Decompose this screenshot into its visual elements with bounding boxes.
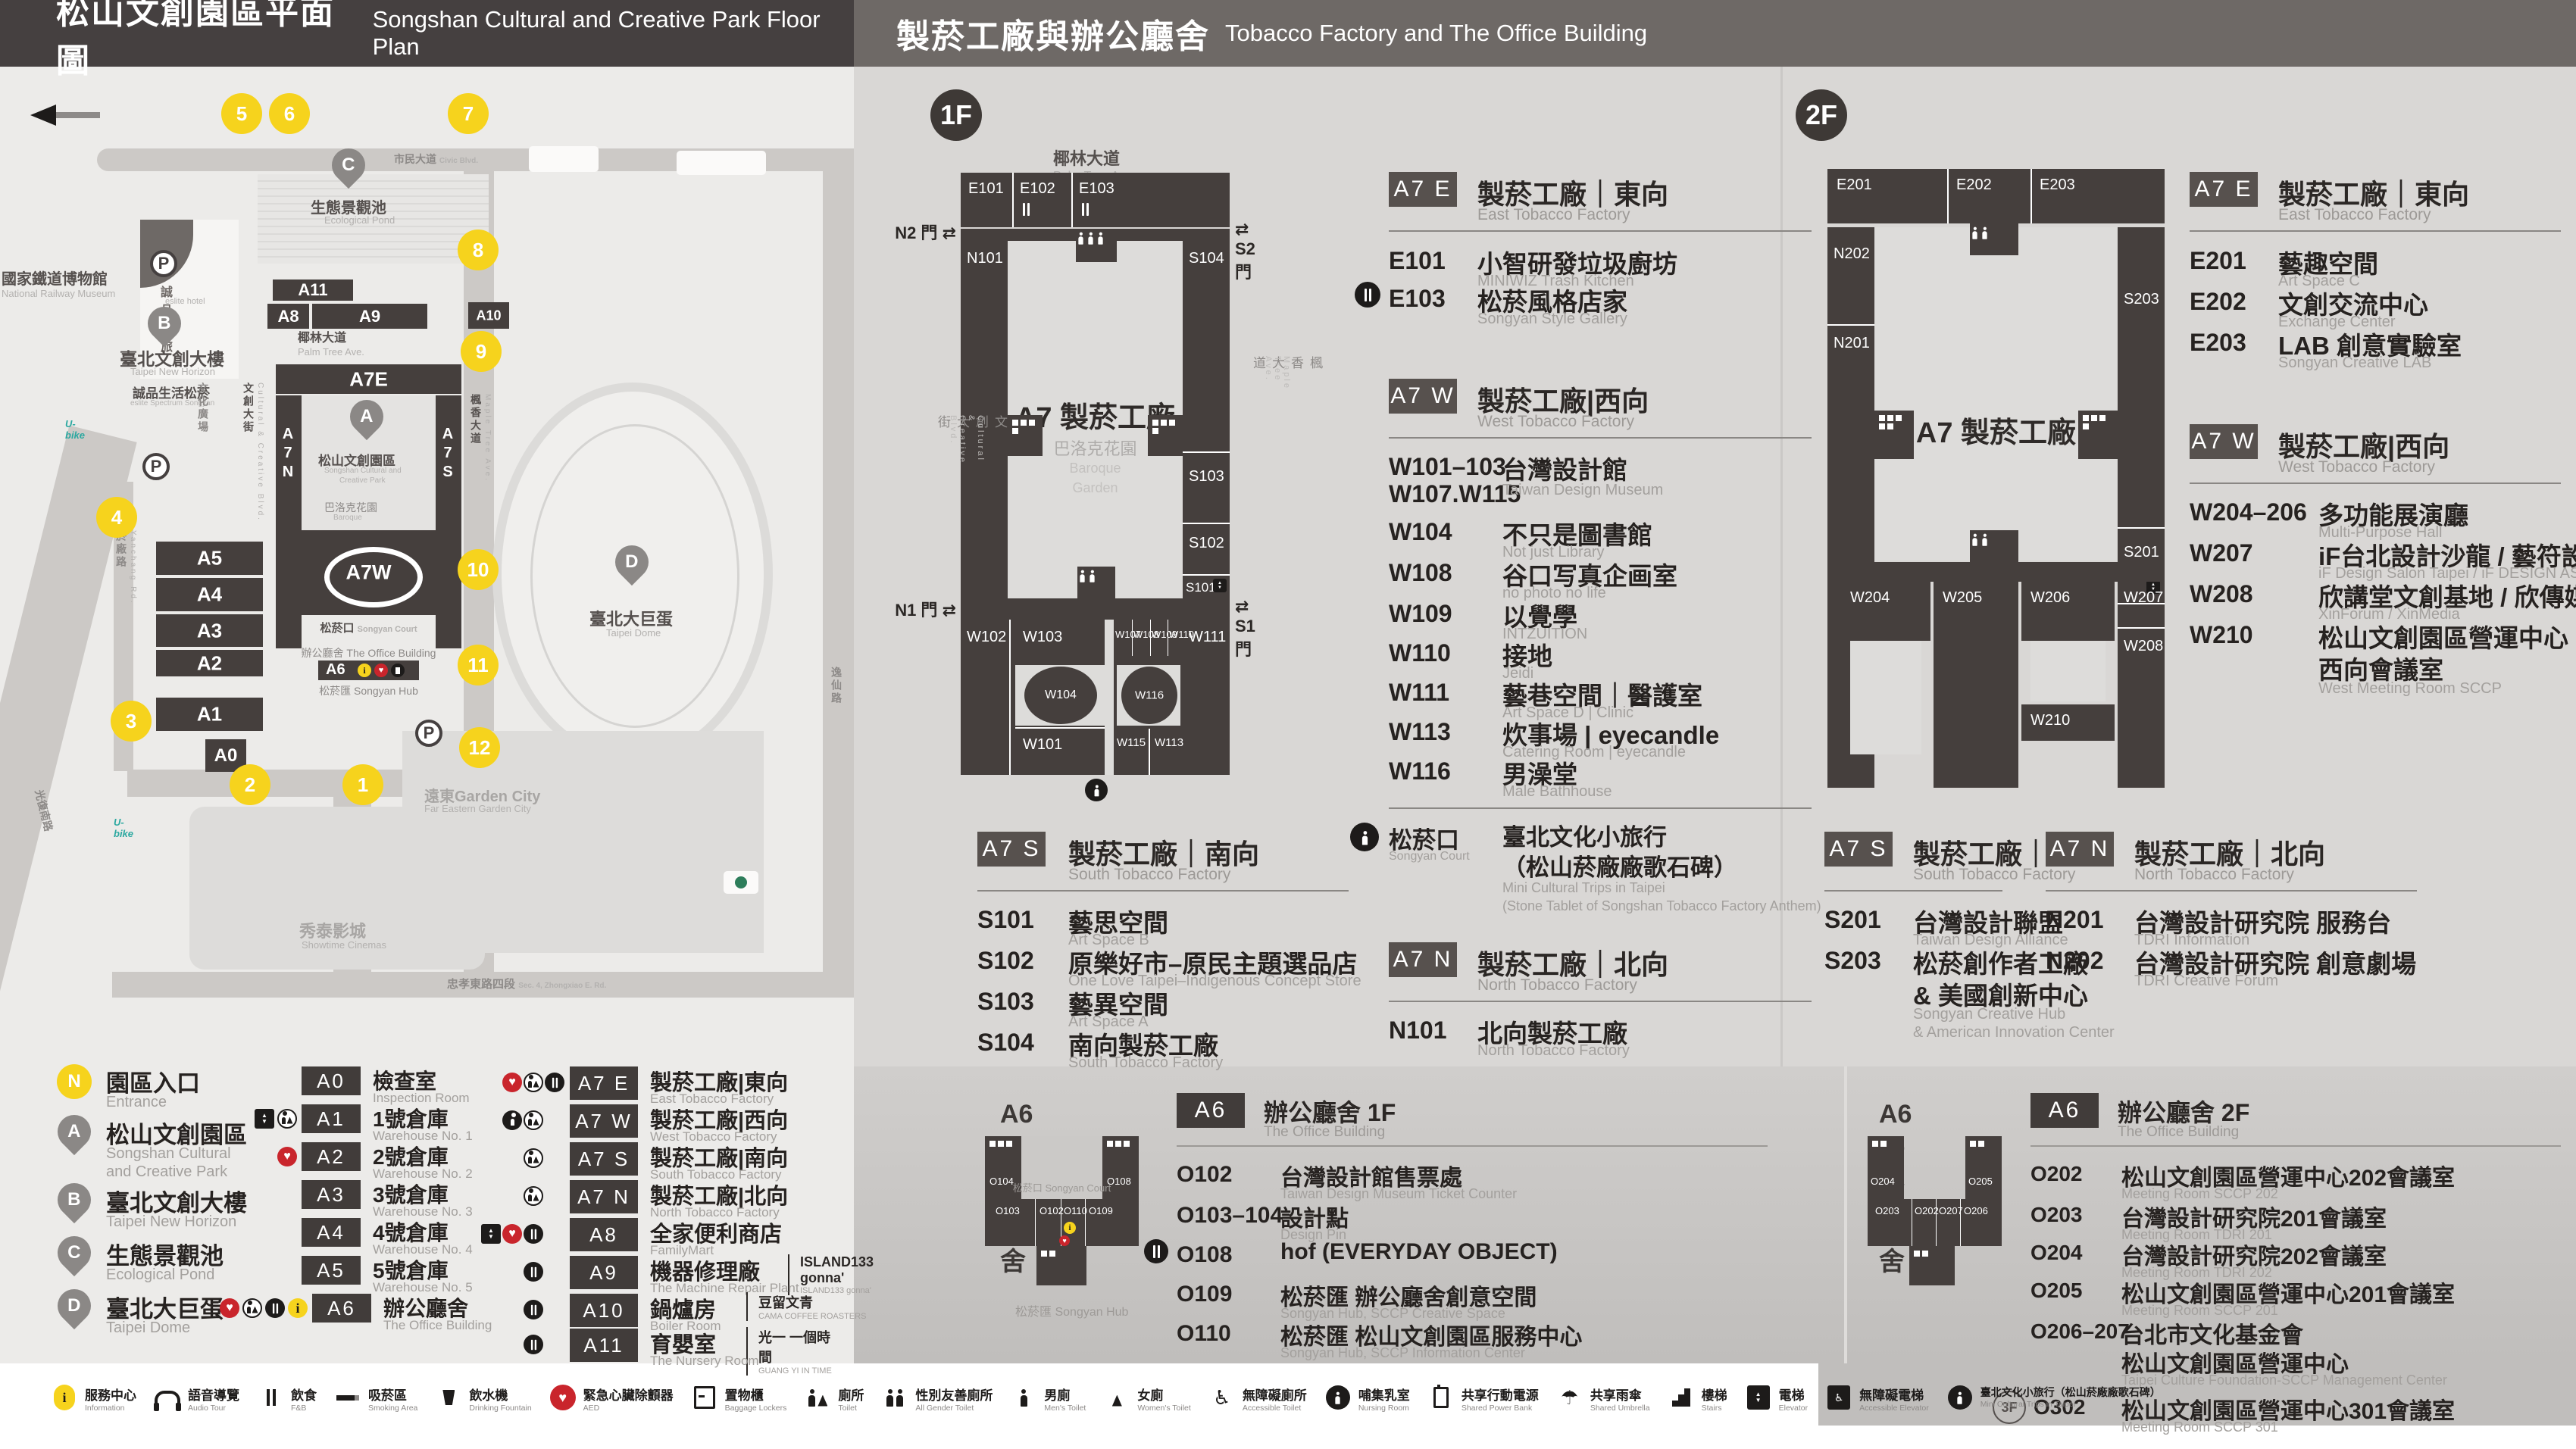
info-icon: i (54, 1385, 75, 1410)
dome-label-en: Taipei Dome (606, 627, 661, 639)
court-zh: 松菸口 (1013, 1182, 1043, 1194)
room-W205: W205 (1943, 589, 1982, 607)
legend-badge-a3: A3 (302, 1180, 361, 1209)
yixian-label: 逸仙路 (829, 667, 844, 705)
room-W206: W206 (2030, 589, 2070, 607)
yanchang-label-en: Yanchang Rd. (129, 530, 137, 605)
railway-museum-label: 國家鐵道博物館 (2, 267, 108, 289)
a6-2f-bottom-bar: O203 O202 O207 O206 (1868, 1199, 2002, 1246)
aed-heart: ♥ (508, 1076, 516, 1089)
map-a7e-bar: A7E (276, 364, 461, 394)
divider (1389, 1001, 1812, 1002)
map-a7s-label: A7S (439, 426, 456, 482)
map-a7s-col: A7S (436, 395, 461, 648)
f2-garden (1874, 227, 2118, 561)
gate-arrows-icon: ⇄ (1235, 220, 1249, 239)
label-zh: 置物櫃 (725, 1385, 787, 1404)
label-zh: 服務中心 (85, 1385, 136, 1404)
legend-park-en: Songshan Cultural (106, 1145, 231, 1163)
court-en: Songyan Court (1045, 1182, 1111, 1194)
room-W115: W115 (1117, 736, 1146, 749)
map-a8: A8 (267, 304, 309, 329)
parking-letter: P (424, 723, 435, 743)
f1-left-stair-block (1008, 415, 1043, 456)
entrance-9-number: 9 (476, 340, 486, 364)
room-E102: E102 (1020, 180, 1055, 198)
label-en: Toilet (838, 1404, 864, 1413)
entrance-12: 12 (459, 727, 500, 768)
a4: A4 (317, 1221, 345, 1244)
code-W109: W109 (1389, 600, 1452, 628)
parking-icon-3: P (415, 720, 442, 747)
room-N101: N101 (967, 250, 1003, 267)
legend-a6-en: The Office Building (383, 1318, 492, 1333)
north-arrow-icon (30, 105, 56, 126)
f1-west-badge: A7 W (1389, 379, 1457, 414)
court-zh: 松菸口 (320, 622, 354, 635)
parking-letter: P (158, 254, 170, 273)
f1-north-title-en: North Tobacco Factory (1477, 976, 1637, 995)
a10-brand-sub: CAMA COFFEE ROASTERS (758, 1312, 866, 1321)
a10: A10 (583, 1299, 624, 1323)
sub-O206: Taipei Culture Foundation-SCCP Managemen… (2121, 1372, 2447, 1388)
label-zh: 緊急心臟除顫器 (583, 1385, 674, 1404)
f2-right-col: S203 S201 ▲▼ (2118, 227, 2165, 788)
entrance-3: 3 (111, 701, 152, 742)
legend-item-smoking: 吸菸區Smoking Area (335, 1385, 417, 1413)
legend-badge-a2: A2 (302, 1142, 361, 1171)
divider (977, 890, 1349, 892)
f2-left-stair-block (1874, 411, 1914, 459)
a3: A3 (317, 1183, 345, 1207)
a6-1f-badge-label: A6 (1195, 1098, 1227, 1123)
a6-2f-badge: A6 (2030, 1093, 2099, 1128)
legend-item-powerbank: 共享行動電源Shared Power Bank (1428, 1385, 1539, 1413)
entrance-7-number: 7 (463, 102, 474, 126)
f1-south-title-en: South Tobacco Factory (1068, 866, 1230, 884)
code-S201: S201 (1824, 906, 1881, 934)
map-a7n-label: A7N (279, 426, 296, 482)
elevator-icon: ▲▼ (255, 1109, 274, 1129)
accessible-elevator-icon: ♿ (1827, 1385, 1850, 1410)
legend-n: N (67, 1071, 80, 1092)
map-a11: A11 (273, 279, 353, 301)
room-W101: W101 (1023, 736, 1062, 754)
road-yixian (823, 156, 854, 997)
info-icon: i (358, 664, 371, 677)
youbike-icon-2: U-bike (114, 817, 133, 839)
a11: A11 (583, 1334, 624, 1357)
a7s: A7 S (578, 1148, 630, 1171)
code-N101: N101 (1389, 1016, 1447, 1045)
map-a6-label: A6 (326, 661, 345, 679)
accessible-icon: ♿ (1213, 1388, 1230, 1407)
label-en: Nursing Room (1358, 1404, 1410, 1413)
room-O203: O203 (1875, 1205, 1899, 1216)
code-E202: E202 (2190, 288, 2246, 316)
aed-icon: ♥ (220, 1298, 239, 1318)
f2-w206-court (2030, 641, 2106, 701)
legend-item-lockers: 置物櫃Baggage Lockers (692, 1385, 787, 1413)
sub-O110: Songyan Hub, SCCP Information Center (1280, 1345, 1525, 1361)
facility-icon-bar: i服務中心Information 語音導覽Audio Tour 飲食F&B 吸菸… (52, 1385, 1552, 1433)
code-N202: N202 (2046, 947, 2104, 975)
map-a11-label: A11 (298, 280, 327, 300)
palm-en: Palm Tree Ave. (298, 346, 364, 358)
legend-item-aed: ♥緊急心臟除顫器AED (550, 1385, 674, 1413)
map-a8-label: A8 (277, 307, 299, 326)
restaurant-icon (1144, 1239, 1168, 1263)
sub-E203: Songyan Creative LAB (2278, 354, 2431, 372)
elevator-icon: ▲▼ (481, 1224, 501, 1244)
right-title-zh: 製菸工廠與辦公廳舍 (896, 9, 1210, 58)
code-S102: S102 (977, 947, 1034, 975)
room-O110: O110 (1064, 1205, 1087, 1216)
aed-icon: ♥ (277, 1147, 297, 1166)
f1-corridor (961, 598, 1230, 620)
divider (1389, 230, 1812, 232)
legend-item-cultural-trip: 臺北文化小旅行（松山菸廠廠歌石碑）Mini Cultural Trips in … (1947, 1385, 2161, 1410)
parking-letter: P (151, 457, 162, 476)
legend-badge-a7n: A7 N (570, 1180, 638, 1213)
nursing-icon (502, 1110, 522, 1130)
room-E202: E202 (1956, 176, 1992, 194)
divider (2190, 482, 2561, 484)
court-sub-2: (Stone Tablet of Songshan Tobacco Factor… (1502, 898, 1821, 914)
room-O109: O109 (1089, 1205, 1113, 1216)
toilet-icon (277, 1109, 297, 1129)
code-E203: E203 (2190, 329, 2246, 357)
entrance-11-number: 11 (467, 654, 489, 677)
room-S101: S101 (1186, 580, 1216, 595)
gate-s1-label: S1 門 (1235, 617, 1255, 659)
legend-a9-extra: ISLAND133 gonna' ISLAND133 gonna' (788, 1254, 874, 1295)
legend-item-elevator: ▲▼電梯Elevator (1746, 1385, 1809, 1413)
map-a4-label: A4 (197, 583, 222, 607)
f2-top-bar: E201 E202 E203 (1827, 169, 2165, 223)
toilet-icon (524, 1110, 543, 1130)
f2-w210: W210 (2021, 704, 2115, 741)
code-O203: O203 (2030, 1203, 2083, 1227)
code-W207: W207 (2190, 539, 2253, 567)
a6-2f-badge-label: A6 (2049, 1098, 2081, 1123)
a5: A5 (317, 1259, 345, 1282)
room-O104: O104 (989, 1176, 1014, 1187)
code-W113: W113 (1389, 718, 1451, 746)
room-W116: W116 (1135, 689, 1164, 702)
label-en: Women's Toilet (1137, 1404, 1190, 1413)
legend-d: D (67, 1295, 80, 1316)
map-a2-label: A2 (197, 651, 222, 675)
room-S203: S203 (2124, 291, 2159, 308)
legend-badge-a8: A8 (570, 1218, 638, 1251)
f2-east-badge-label: A7 E (2194, 176, 2252, 202)
f2-west-title-en: West Tobacco Factory (2278, 458, 2435, 476)
code-W110: W110 (1389, 639, 1451, 667)
legend-dome-en: Taipei Dome (106, 1319, 190, 1337)
gate-n1: N1 門 ⇄ (877, 597, 956, 621)
maple-label: 楓香大道 (468, 394, 483, 445)
legend-badge-a7w: A7 W (570, 1104, 638, 1138)
entrance-8: 8 (458, 230, 499, 270)
entrance-6: 6 (269, 93, 310, 134)
map-a5-label: A5 (197, 547, 222, 570)
room-O103: O103 (996, 1205, 1020, 1216)
gate-n1-label: N1 門 (895, 601, 937, 620)
a7w: A7 W (575, 1110, 633, 1133)
civic-zh: 市民大道 (394, 153, 436, 165)
office-band-divider (1844, 1066, 1847, 1363)
elev-down: ▼ (488, 1234, 494, 1240)
aed-heart: ♥ (226, 1301, 233, 1315)
civic-label: 市民大道 Civic Blvd. (394, 151, 478, 167)
code-S101: S101 (977, 906, 1034, 934)
songyan-court-walk-icon (1085, 779, 1108, 801)
label-zh: 無障礙廁所 (1243, 1385, 1307, 1404)
map-a1-label: A1 (197, 703, 222, 726)
right-panel-column-divider (1780, 67, 1783, 1066)
legend-entrance-icon: N (57, 1064, 92, 1099)
f1-baroque-en2: Garden (1008, 480, 1183, 496)
toilet-icon (242, 1298, 262, 1318)
a6-2f-stem (1909, 1246, 1955, 1285)
right-title-en: Tobacco Factory and The Office Building (1225, 20, 1647, 47)
restaurant-icon (265, 1298, 285, 1318)
baroque-label-en: Baroque (333, 514, 362, 522)
elev-down: ▼ (1755, 1397, 1762, 1404)
entrance-9: 9 (461, 331, 502, 372)
f1-west-badge-label: A7 W (1390, 383, 1455, 409)
zhongxiao-label: 忠孝東路四段 Sec. 4, Zhongxiao E. Rd. (447, 976, 606, 992)
label-en: Elevator (1779, 1404, 1809, 1413)
palm-ave-label: 椰林大道 Palm Tree Ave. (298, 327, 364, 359)
map-a0-label: A0 (214, 745, 238, 767)
f1-west-title-en: West Tobacco Factory (1477, 413, 1634, 431)
room-W207: W207 (2124, 589, 2163, 607)
legend-b: B (67, 1189, 80, 1210)
room-O205: O205 (1968, 1176, 1993, 1187)
code-W204: W204–206 (2190, 498, 2307, 526)
code-O206: O206–207 (2030, 1319, 2130, 1344)
zhongxiao-zh: 忠孝東路四段 (447, 978, 515, 991)
ccblvd-label-en: Cultural & Creative Blvd. (256, 383, 264, 522)
aed-heart: ♥ (558, 1390, 567, 1406)
code-O103: O103–104 (1177, 1203, 1283, 1229)
room-N202: N202 (1834, 245, 1870, 263)
a6-1f-hub-label: 松菸匯 Songyan Hub (1015, 1301, 1128, 1319)
north-arrow-tail (56, 112, 100, 118)
entrance-1: 1 (342, 764, 383, 805)
label-zh: 共享雨傘 (1590, 1385, 1650, 1404)
entrance-3-number: 3 (126, 710, 136, 733)
legend-badge-a7e: A7 E (570, 1066, 638, 1100)
code-O204: O204 (2030, 1241, 2083, 1265)
entrance-11: 11 (458, 645, 499, 685)
f1-top-bar: E101 E102 E103 (961, 173, 1230, 227)
f2-w206: W206 (2021, 582, 2115, 641)
gate-s1: ⇄ S1 門 (1235, 597, 1255, 660)
pin-b-letter: B (158, 313, 170, 334)
gate-s2-label: S2 門 (1235, 239, 1255, 282)
divider (1389, 807, 1812, 809)
label-en: All Gender Toilet (915, 1404, 993, 1413)
entrance-10: 10 (458, 549, 499, 590)
a11-brand-sub: GUANG YI IN TIME (758, 1366, 832, 1376)
label-zh: 臺北文化小旅行（松山菸廠廠歌石碑） (1980, 1385, 2161, 1400)
legend-item-water: 飲水機Drinking Fountain (436, 1385, 531, 1413)
map-a7w-block: A7W (302, 530, 436, 615)
label-en: Information (85, 1404, 136, 1413)
legend-item-accessible-elevator: ♿無障礙電梯Accessible Elevator (1826, 1385, 1929, 1413)
sub-N101: North Tobacco Factory (1477, 1042, 1630, 1060)
map-a6-bar: A6 i ♥ (318, 660, 419, 680)
f2-w205: W205 (1934, 582, 2018, 788)
legend-badge-a9: A9 (570, 1256, 638, 1289)
a2: A2 (317, 1145, 345, 1169)
eslite-hotel-label-en: eslite hotel (165, 297, 205, 306)
palm-zh: 椰林大道 (1053, 149, 1120, 168)
sub-S203: Songyan Creative Hub (1913, 1006, 2065, 1023)
a10-brand: 豆留文青 (758, 1292, 866, 1312)
a7n: A7 N (577, 1185, 630, 1209)
parking-icon-2: P (142, 453, 170, 480)
legend-a: A (67, 1121, 80, 1142)
railway-museum-label-en: National Railway Museum (2, 288, 115, 299)
code-W104: W104 (1389, 518, 1452, 546)
a6-1f-court: 松菸口 Songyan Court (1021, 1136, 1102, 1199)
entrance-5-number: 5 (236, 102, 247, 126)
info-letter: i (1068, 1223, 1071, 1232)
elev-down: ▼ (1218, 586, 1222, 590)
ccblvd-label: 文創大街 (241, 383, 256, 434)
gate-n2-label: N2 門 (895, 223, 937, 242)
aed-icon: ♥ (1059, 1235, 1070, 1246)
pin-d-letter: D (625, 551, 638, 573)
legend-a10-extra: 豆留文青 CAMA COFFEE ROASTERS (746, 1292, 866, 1321)
room-W104: W104 (1045, 689, 1077, 702)
f1-bottom-gate-block (1077, 567, 1115, 598)
sub-O302: Meeting Room SCCP 301 (2121, 1419, 2278, 1435)
gate-n2: N2 門 ⇄ (877, 220, 956, 244)
entrance-5: 5 (221, 93, 262, 134)
bus-stop-box-1 (529, 146, 599, 172)
pond-label-en: Ecological Pond (324, 214, 395, 226)
info-letter: i (295, 1301, 299, 1316)
map-a1: A1 (156, 698, 263, 731)
room-W208: W208 (2124, 638, 2163, 655)
maple-label-en: Maple Tree Ave. (483, 394, 492, 482)
hub-map-label: 松菸匯 Songyan Hub (302, 683, 436, 698)
f2-west-badge-label: A7 W (2191, 429, 2256, 454)
code-O202: O202 (2030, 1162, 2083, 1186)
map-a7n-col: A7N (276, 395, 302, 648)
floor1-badge: 1F (930, 89, 982, 141)
label-zh: 女廁 (1137, 1385, 1190, 1404)
room-W210: W210 (2030, 712, 2070, 729)
smoking-icon (336, 1395, 359, 1401)
a6-1f-stem (1036, 1246, 1086, 1285)
label-zh: 飲水機 (469, 1385, 531, 1404)
f2-north-badge: A7 N (2046, 832, 2114, 867)
hub-zh: 松菸匯 (319, 685, 351, 697)
hub-en: Songyan Hub (1055, 1306, 1128, 1319)
gardencity-label-en: Far Eastern Garden City (424, 803, 531, 814)
legend-item-stairs: 樓梯Stairs (1668, 1385, 1727, 1413)
officebldg-map-label: 辦公廳舍 The Office Building (288, 645, 449, 660)
code-W108: W108 (1389, 559, 1452, 587)
a1: A1 (317, 1107, 345, 1131)
map-a10-label: A10 (476, 308, 501, 323)
label-zh: 電梯 (1779, 1385, 1809, 1404)
pin-a-letter: A (360, 406, 373, 427)
label-en: Smoking Area (368, 1404, 417, 1413)
code-O205: O205 (2030, 1279, 2083, 1303)
parking-icon-1: P (150, 250, 177, 277)
f1-north-badge: A7 N (1389, 942, 1457, 977)
legend-item-mens: 男廁Men's Toilet (1011, 1385, 1086, 1413)
legend-badge-a10: A10 (570, 1294, 638, 1327)
gate-arrows-icon: ⇄ (943, 223, 956, 242)
elevator-icon: ▲▼ (1213, 579, 1227, 592)
elev-down: ▼ (261, 1119, 267, 1125)
f2-right-stair-block (2078, 411, 2118, 459)
floor-plan-poster: 松山文創園區平面圖 Songshan Cultural and Creative… (0, 0, 2576, 1449)
cultural-trip-icon (1948, 1385, 1972, 1410)
map-a3-label: A3 (197, 619, 222, 642)
info-letter: i (62, 1390, 66, 1406)
room-S102: S102 (1189, 535, 1224, 552)
map-a3: A3 (156, 614, 263, 647)
sub-E103: Songyan Style Gallery (1477, 311, 1627, 328)
map-a7w-label: A7W (346, 561, 392, 585)
toilet-icon (524, 1073, 543, 1092)
f1-left-col: N101 (961, 241, 1008, 775)
legend-item-information: i服務中心Information (52, 1385, 136, 1413)
f2-w204-court (1850, 641, 1921, 754)
gate-s2: ⇄ S2 門 (1235, 220, 1255, 283)
code-S104: S104 (977, 1029, 1034, 1057)
baggage-locker-icon (694, 1386, 715, 1409)
legend-pond-en: Ecological Pond (106, 1266, 214, 1284)
civic-en: Civic Blvd. (439, 157, 478, 165)
f2-south-title-en: South Tobacco Factory (1913, 866, 2075, 884)
a6-2f-title-en: The Office Building (2118, 1124, 2239, 1141)
info-icon: i (288, 1298, 308, 1318)
label-en: Men's Toilet (1044, 1404, 1086, 1413)
legend-a11-en: The Nursery Room (650, 1354, 759, 1369)
metro-icon (724, 871, 758, 894)
aed-heart: ♥ (379, 666, 384, 675)
a8: A8 (589, 1223, 618, 1247)
a9-brand: ISLAND133 gonna' (800, 1254, 874, 1286)
divider (2190, 230, 2561, 232)
f1-right-stair-block (1148, 415, 1183, 456)
room-W204: W204 (1850, 589, 1890, 607)
restaurant-icon (545, 1073, 564, 1092)
floor2-badge: 2F (1796, 89, 1847, 141)
room-O204: O204 (1871, 1176, 1895, 1187)
palm-zh: 椰林大道 (298, 332, 346, 345)
code-E101: E101 (1389, 247, 1446, 275)
a6: A6 (327, 1297, 356, 1320)
f1-w104-oval: W104 (1024, 667, 1097, 724)
entrance-12-number: 12 (469, 736, 491, 760)
legend-c: C (67, 1242, 80, 1263)
aed-heart: ♥ (508, 1227, 516, 1241)
cinema-label-en: Showtime Cinemas (302, 939, 386, 951)
sub-N202: TDRI Creative Forum (2134, 973, 2278, 990)
name-W101: 台灣設計館 (1502, 450, 1627, 486)
